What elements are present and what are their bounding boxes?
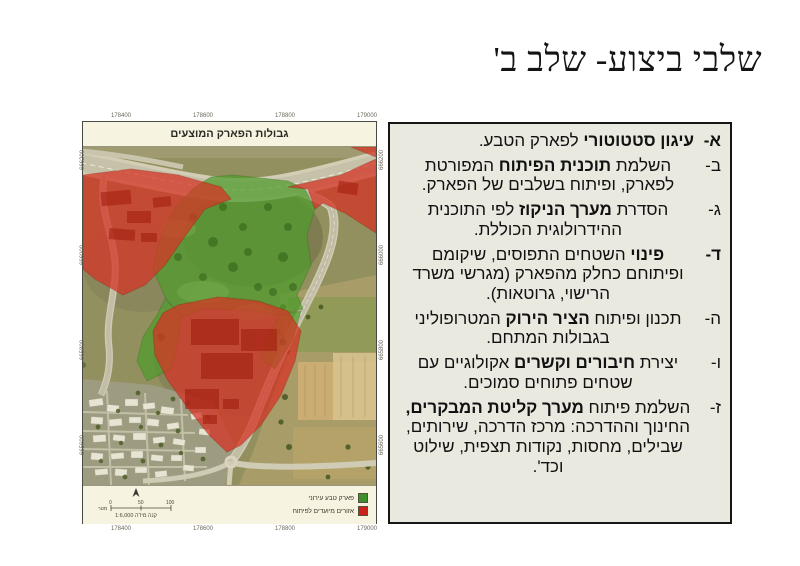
stage-text: השלמת תוכנית הפיתוח המפורטת לפארק, ופיתו… xyxy=(402,156,694,195)
stage-item: ג-הסדרת מערך הניקוז לפי התוכנית ההידרולו… xyxy=(402,200,721,239)
scale-tick-0: 0 xyxy=(109,500,112,506)
grid-coordinate-label: 665800 xyxy=(80,340,86,360)
page-title: שלבי ביצוע- שלב ב' xyxy=(242,40,762,80)
stage-text-segment: לפארק הטבע. xyxy=(479,131,584,150)
stage-text: הסדרת מערך הניקוז לפי התוכנית ההידרולוגי… xyxy=(402,200,694,239)
grid-coordinate-label: 179000 xyxy=(357,113,377,119)
scale-bar: מטר 0 50 100 xyxy=(97,499,175,512)
stage-text-segment: הסדרת xyxy=(612,200,668,219)
stage-letter: ו- xyxy=(694,353,721,392)
stage-letter: ה- xyxy=(694,309,721,348)
stage-letter: ז- xyxy=(694,398,721,477)
stage-text: השלמת פיתוח מערך קליטת המבקרים, החינוך ו… xyxy=(402,398,694,477)
stage-text-segment: השלמת xyxy=(611,156,671,175)
north-arrow-icon xyxy=(128,488,144,499)
grid-coordinate-label: 666000 xyxy=(80,245,86,265)
stage-letter: ג- xyxy=(694,200,721,239)
grid-coordinate-label: 666200 xyxy=(80,150,86,170)
grid-coordinate-label: 665600 xyxy=(80,435,86,455)
stage-letter: ד- xyxy=(694,245,721,304)
stage-letter: ב- xyxy=(694,156,721,195)
stage-text-segment: הציר הירוק xyxy=(506,309,590,328)
grid-coordinate-label: 665600 xyxy=(379,435,385,455)
grid-coordinate-label: 178800 xyxy=(275,526,295,532)
legend-label: אזורים מיועדים לפיתוח xyxy=(293,508,354,515)
stage-item: ה-תכנון ופיתוח הציר הירוק המטרופוליני בג… xyxy=(402,309,721,348)
map-panel: גבולות הפארק המוצעים xyxy=(82,121,377,524)
legend-items: פארק טבע עירוניאזורים מיועדים לפיתוח xyxy=(293,493,368,524)
grid-coordinate-label: 179000 xyxy=(357,526,377,532)
grid-coordinate-label: 178600 xyxy=(193,526,213,532)
legend-row: אזורים מיועדים לפיתוח xyxy=(293,506,368,516)
grid-coordinate-label: 178600 xyxy=(193,113,213,119)
map-legend: פארק טבע עירוניאזורים מיועדים לפיתוח מטר… xyxy=(83,485,376,524)
stage-item: ד-פינוי השטחים התפוסים, שיקומם ופיתוחם כ… xyxy=(402,245,721,304)
stage-text-segment: החינוך וההדרכה: מרכז הדרכה, שירותים, שבי… xyxy=(406,417,690,475)
scale-ratio-text: קנה מידה 1:6,000 xyxy=(115,513,157,519)
stage-item: ו-יצירת חיבורים וקשרים אקולוגיים עם שטחי… xyxy=(402,353,721,392)
stage-text-segment: עיגון סטטוטורי xyxy=(583,131,694,150)
legend-row: פארק טבע עירוני xyxy=(293,493,368,503)
stage-text: יצירת חיבורים וקשרים אקולוגיים עם שטחים … xyxy=(402,353,694,392)
map-title: גבולות הפארק המוצעים xyxy=(170,128,288,140)
stage-text-segment: חיבורים וקשרים xyxy=(514,353,635,372)
grid-coordinate-label: 178400 xyxy=(111,526,131,532)
stage-text-segment: תוכנית הפיתוח xyxy=(499,156,611,175)
legend-swatch-icon xyxy=(358,506,368,516)
stage-text-segment: תכנון ופיתוח xyxy=(590,309,682,328)
grid-coordinate-label: 666000 xyxy=(379,245,385,265)
slide: שלבי ביצוע- שלב ב' גבולות הפארק המוצעים xyxy=(0,0,800,566)
grid-coordinate-label: 666200 xyxy=(379,150,385,170)
stages-box: א-עיגון סטטוטורי לפארק הטבע.ב-השלמת תוכנ… xyxy=(388,122,732,524)
stage-item: ז-השלמת פיתוח מערך קליטת המבקרים, החינוך… xyxy=(402,398,721,477)
grid-coordinate-label: 178400 xyxy=(111,113,131,119)
scale-unit: מטר xyxy=(98,506,108,512)
stage-text: תכנון ופיתוח הציר הירוק המטרופוליני בגבו… xyxy=(402,309,694,348)
stage-text-segment: יצירת xyxy=(635,353,678,372)
stage-text: עיגון סטטוטורי לפארק הטבע. xyxy=(402,131,694,151)
stage-text-segment: פינוי xyxy=(630,245,664,264)
scale-tick-50: 50 xyxy=(138,500,144,506)
stage-item: א-עיגון סטטוטורי לפארק הטבע. xyxy=(402,131,721,151)
stage-text-segment: מערך הניקוז xyxy=(519,200,612,219)
stage-text: פינוי השטחים התפוסים, שיקומם ופיתוחם כחל… xyxy=(402,245,694,304)
stage-letter: א- xyxy=(694,131,721,151)
stage-item: ב-השלמת תוכנית הפיתוח המפורטת לפארק, ופי… xyxy=(402,156,721,195)
legend-swatch-icon xyxy=(358,493,368,503)
stage-text-segment: השלמת פיתוח xyxy=(584,398,691,417)
scale-tick-100: 100 xyxy=(166,500,175,506)
scale-group: מטר 0 50 100 קנה מידה 1:6,000 xyxy=(93,488,179,524)
map-title-bar: גבולות הפארק המוצעים xyxy=(83,122,376,147)
stage-text-segment: מערך קליטת המבקרים, xyxy=(406,398,584,417)
aerial-map-image xyxy=(83,147,376,485)
grid-coordinate-label: 178800 xyxy=(275,113,295,119)
legend-label: פארק טבע עירוני xyxy=(308,495,354,502)
grid-coordinate-label: 665800 xyxy=(379,340,385,360)
